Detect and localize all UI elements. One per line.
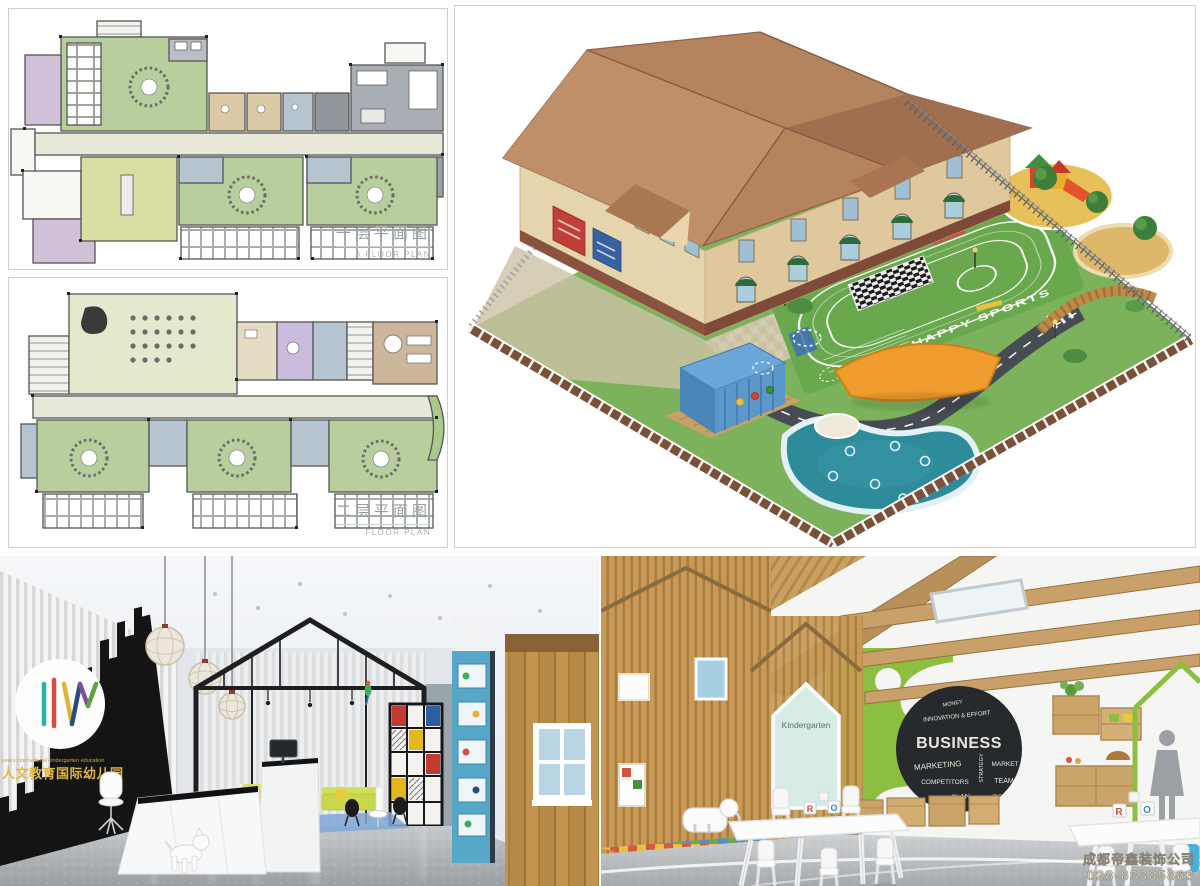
- chalk-word: TEAM: [994, 778, 1014, 785]
- kindergarten-design-board: 一层平面图 A FLOOR PLAN: [0, 0, 1200, 886]
- chalkboard-circle: MONEY INNOVATION & EFFORT BUSINESS MARKE…: [896, 686, 1022, 812]
- watermark-phone: 028-83385863: [1087, 867, 1195, 883]
- block-letter: O: [1143, 805, 1151, 816]
- logo-circle: [15, 659, 105, 749]
- classroom-interior-render: Kindergarten MONEY INNOVATION & EFFORT B…: [601, 556, 1200, 886]
- first-floor-plan-label: 一层平面图 A FLOOR PLAN: [336, 222, 431, 259]
- chalk-word: COMPETITORS: [921, 779, 969, 786]
- mini-pendant: [350, 701, 354, 705]
- watermark: 成都帝鑫装饰公司 028-83385863: [1083, 852, 1195, 883]
- second-floor-plan-title-cn: 二层平面图: [336, 500, 431, 525]
- site-aerial-render-panel: HAPPY SPORTS: [454, 5, 1196, 548]
- logo-tagline: years international kindergarten educati…: [2, 758, 104, 764]
- classroom-scene: Kindergarten MONEY INNOVATION & EFFORT B…: [601, 556, 1200, 886]
- house-window-blue: [696, 659, 726, 699]
- house-window-white: [619, 674, 649, 700]
- block-letter: R: [807, 804, 814, 814]
- block-letter: R: [1115, 807, 1123, 818]
- second-floor-plan-label: 二层平面图 FLOOR PLAN: [336, 500, 431, 537]
- first-floor-plan-title-cn: 一层平面图: [336, 222, 431, 247]
- blue-bookcase: [452, 616, 495, 863]
- second-floor-plan-panel: 二层平面图 FLOOR PLAN: [8, 277, 448, 548]
- block-letter: O: [830, 803, 837, 813]
- first-floor-plan-title-en: A FLOOR PLAN: [336, 250, 431, 259]
- kindergarten-sign-text: Kindergarten: [782, 720, 831, 730]
- canopy-shadow: [851, 393, 991, 411]
- mini-pendant: [308, 703, 312, 707]
- mini-pendant: [266, 701, 270, 705]
- site-aerial-render: HAPPY SPORTS: [455, 6, 1195, 547]
- first-floor-plan-panel: 一层平面图 A FLOOR PLAN: [8, 8, 448, 270]
- lobby-interior-render: years international kindergarten educati…: [0, 556, 599, 886]
- second-floor-plan-title-en: FLOOR PLAN: [336, 528, 431, 537]
- chalk-word: STRATEGY: [979, 753, 985, 783]
- chalk-word-main: BUSINESS: [916, 735, 1002, 752]
- wood-playhouse-wall: [505, 634, 599, 886]
- chalk-word: MARKET: [991, 761, 1018, 768]
- watermark-company: 成都帝鑫装饰公司: [1083, 852, 1195, 867]
- lobby-scene: years international kindergarten educati…: [0, 556, 599, 886]
